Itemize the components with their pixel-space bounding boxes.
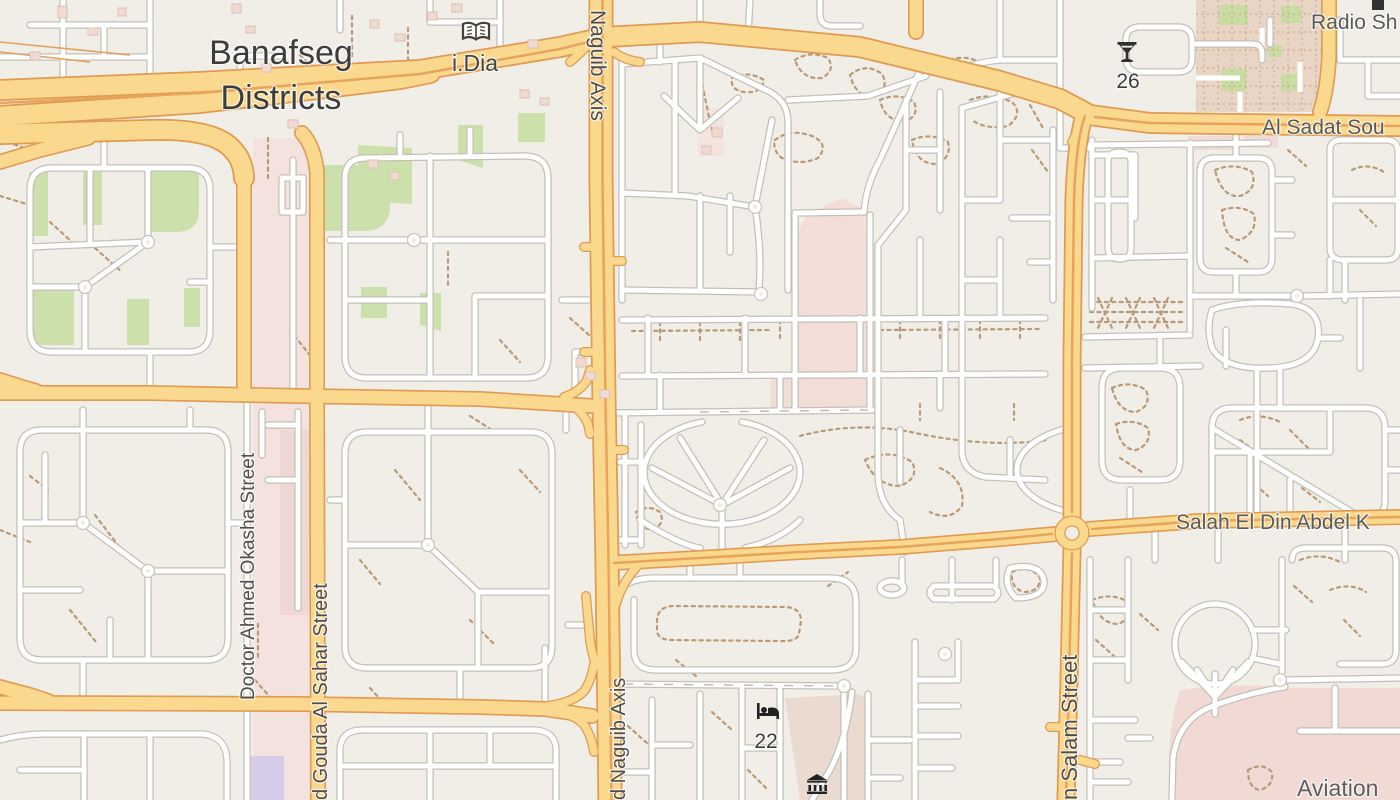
svg-text:i.Dia: i.Dia (452, 50, 498, 76)
svg-text:Aviation: Aviation (1297, 775, 1378, 800)
svg-text:Radio Sh: Radio Sh (1311, 11, 1397, 34)
svg-text:Districts: Districts (221, 79, 342, 117)
svg-text:n Salam Street: n Salam Street (1057, 654, 1082, 800)
svg-text:Doctor Ahmed Okasha Street: Doctor Ahmed Okasha Street (238, 452, 259, 700)
svg-text:26: 26 (1116, 70, 1139, 93)
svg-text:22: 22 (754, 730, 777, 753)
svg-text:Naguib Axis: Naguib Axis (586, 10, 609, 121)
svg-text:d Gouda Al Sahar Street: d Gouda Al Sahar Street (310, 583, 332, 800)
svg-text:Banafseg: Banafseg (209, 34, 353, 72)
svg-text:Al Sadat Sou: Al Sadat Sou (1262, 116, 1385, 139)
svg-text:d Naguib Axis: d Naguib Axis (608, 678, 630, 800)
svg-text:Salah El Din Abdel K: Salah El Din Abdel K (1176, 511, 1370, 534)
